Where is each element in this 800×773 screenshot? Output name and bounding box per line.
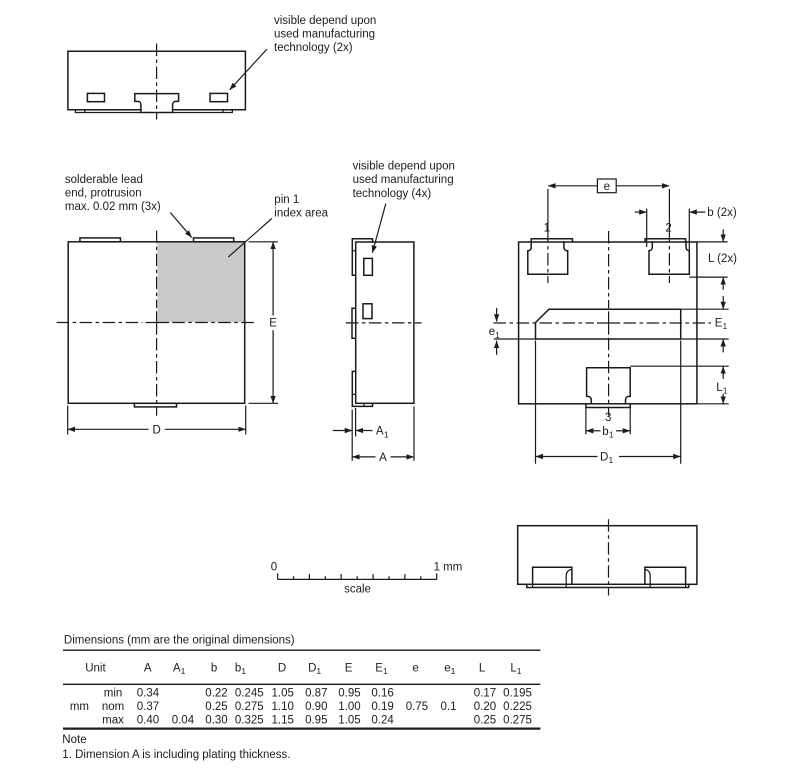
svg-text:A: A — [144, 662, 152, 674]
svg-text:index area: index area — [274, 208, 328, 220]
svg-text:E: E — [345, 662, 353, 674]
svg-text:1. Dimension A is including pl: 1. Dimension A is including plating thic… — [62, 749, 290, 761]
svg-text:1: 1 — [544, 223, 550, 235]
svg-text:1: 1 — [384, 429, 389, 439]
svg-text:D: D — [308, 662, 316, 674]
svg-text:e: e — [412, 662, 418, 674]
svg-text:Note: Note — [62, 734, 86, 746]
svg-text:1.10: 1.10 — [272, 701, 294, 713]
svg-text:0.24: 0.24 — [371, 715, 394, 727]
svg-text:mm: mm — [70, 701, 89, 713]
svg-text:0.75: 0.75 — [406, 701, 428, 713]
svg-text:1: 1 — [723, 321, 728, 331]
svg-text:visible depend upon: visible depend upon — [353, 160, 455, 172]
svg-text:1: 1 — [609, 430, 614, 440]
svg-text:0.90: 0.90 — [305, 701, 327, 713]
svg-text:end, protrusion: end, protrusion — [65, 187, 142, 199]
svg-text:0.22: 0.22 — [205, 688, 227, 700]
svg-text:0.20: 0.20 — [474, 701, 496, 713]
svg-text:0.1: 0.1 — [441, 701, 457, 713]
svg-text:0.25: 0.25 — [205, 701, 227, 713]
svg-text:0.30: 0.30 — [205, 715, 227, 727]
svg-text:0.04: 0.04 — [172, 715, 195, 727]
svg-text:0.34: 0.34 — [137, 688, 160, 700]
svg-text:used manufacturing: used manufacturing — [274, 29, 375, 41]
svg-text:1: 1 — [495, 330, 500, 340]
svg-text:L (2x): L (2x) — [708, 253, 737, 265]
svg-text:0.87: 0.87 — [305, 688, 327, 700]
svg-text:b: b — [211, 662, 217, 674]
svg-text:nom: nom — [102, 701, 124, 713]
svg-text:E: E — [269, 318, 277, 330]
svg-text:technology (4x): technology (4x) — [353, 188, 432, 200]
svg-text:A: A — [379, 452, 387, 464]
svg-text:1.15: 1.15 — [272, 715, 294, 727]
svg-text:1: 1 — [451, 666, 456, 676]
svg-text:used manufacturing: used manufacturing — [353, 174, 454, 186]
svg-text:1: 1 — [609, 455, 614, 465]
svg-text:solderable lead: solderable lead — [65, 174, 143, 186]
svg-text:e: e — [604, 181, 610, 193]
svg-text:0.95: 0.95 — [338, 688, 360, 700]
svg-text:b: b — [602, 426, 608, 438]
svg-text:0.195: 0.195 — [503, 688, 532, 700]
svg-text:visible depend upon: visible depend upon — [274, 15, 376, 27]
svg-text:1: 1 — [241, 666, 246, 676]
svg-text:1: 1 — [181, 666, 186, 676]
svg-text:b (2x): b (2x) — [707, 207, 737, 219]
svg-text:D: D — [600, 452, 608, 464]
svg-text:1 mm: 1 mm — [434, 562, 463, 574]
svg-text:0.275: 0.275 — [235, 701, 264, 713]
svg-text:1: 1 — [723, 386, 728, 396]
svg-text:0.275: 0.275 — [503, 715, 532, 727]
svg-text:D: D — [152, 424, 160, 436]
svg-text:A: A — [376, 426, 384, 438]
svg-text:3: 3 — [605, 412, 611, 424]
svg-text:0.325: 0.325 — [235, 715, 264, 727]
svg-text:1: 1 — [517, 666, 522, 676]
svg-text:Unit: Unit — [85, 662, 106, 674]
svg-text:1.00: 1.00 — [338, 701, 360, 713]
svg-text:0.40: 0.40 — [137, 715, 159, 727]
svg-text:pin 1: pin 1 — [274, 194, 299, 206]
svg-text:1.05: 1.05 — [272, 688, 294, 700]
svg-text:2: 2 — [665, 223, 671, 235]
svg-text:0.245: 0.245 — [235, 688, 264, 700]
svg-text:0.19: 0.19 — [371, 701, 393, 713]
svg-text:min: min — [104, 688, 123, 700]
svg-text:1.05: 1.05 — [338, 715, 360, 727]
svg-text:Dimensions (mm are the origina: Dimensions (mm are the original dimensio… — [64, 634, 295, 646]
svg-text:D: D — [278, 662, 286, 674]
svg-text:1: 1 — [383, 666, 388, 676]
svg-text:0.25: 0.25 — [474, 715, 496, 727]
svg-text:0.95: 0.95 — [305, 715, 327, 727]
svg-text:1: 1 — [316, 666, 321, 676]
svg-text:L: L — [479, 662, 486, 674]
svg-text:0.225: 0.225 — [503, 701, 532, 713]
svg-text:technology (2x): technology (2x) — [274, 42, 353, 54]
svg-text:0.17: 0.17 — [474, 688, 496, 700]
svg-text:scale: scale — [344, 584, 371, 596]
svg-text:max: max — [102, 715, 124, 727]
svg-text:0: 0 — [271, 562, 277, 574]
svg-text:max. 0.02 mm (3x): max. 0.02 mm (3x) — [65, 201, 161, 213]
svg-text:0.37: 0.37 — [137, 701, 159, 713]
svg-text:0.16: 0.16 — [371, 688, 393, 700]
